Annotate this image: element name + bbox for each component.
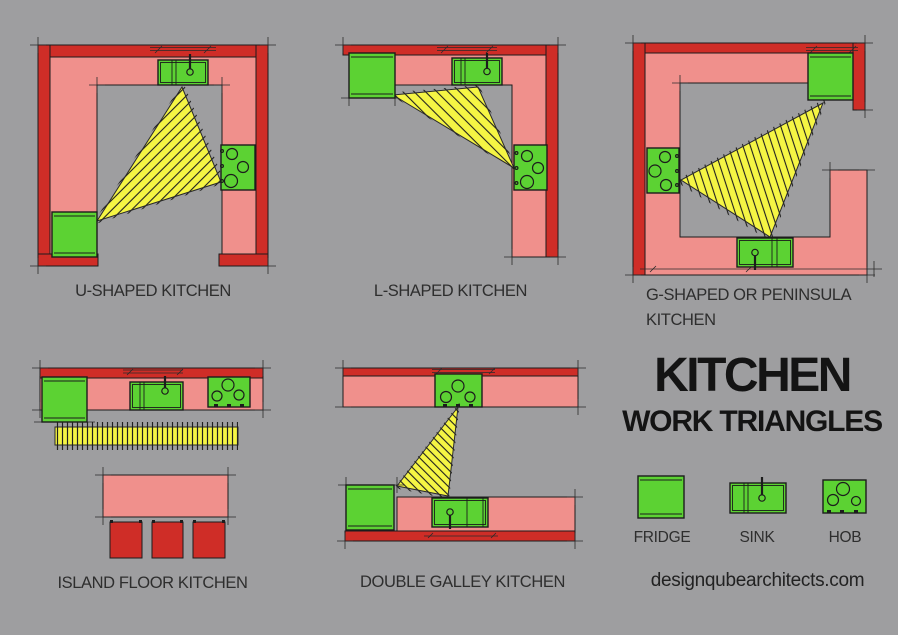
- fridge-icon: [42, 377, 87, 422]
- legend-sink-icon: [730, 477, 786, 513]
- label-g-shaped-kitchen: G-SHAPED OR PENINSULA KITCHEN: [646, 283, 881, 333]
- wall: [256, 45, 268, 266]
- hob-icon: [221, 145, 255, 190]
- label-u-shaped-kitchen: U-SHAPED KITCHEN: [38, 282, 268, 301]
- sink-icon: [737, 238, 793, 270]
- fridge-icon: [808, 53, 853, 100]
- legend-label-fridge: FRIDGE: [618, 529, 706, 547]
- fridge-icon: [52, 212, 97, 257]
- work-triangle-hatch: [681, 103, 823, 237]
- work-triangle-hatch: [397, 407, 458, 496]
- diagram-u-shaped-kitchen: [30, 37, 276, 274]
- fridge-icon: [346, 485, 394, 530]
- diagram-g-shaped-kitchen: [625, 35, 882, 283]
- wall: [38, 45, 268, 57]
- hob-icon: [647, 148, 679, 193]
- hob-icon: [514, 145, 547, 190]
- wall: [546, 45, 558, 257]
- sink-icon: [432, 498, 488, 529]
- hob-icon: [435, 374, 482, 407]
- label-double-galley-kitchen: DOUBLE GALLEY KITCHEN: [340, 573, 585, 592]
- title-line-1: KITCHEN: [612, 352, 892, 400]
- poster-title: KITCHEN WORK TRIANGLES: [612, 352, 892, 437]
- label-island-floor-kitchen: ISLAND FLOOR KITCHEN: [30, 574, 275, 593]
- sink-icon: [452, 53, 502, 85]
- legend-fridge-icon: [638, 476, 684, 518]
- wall: [633, 43, 645, 275]
- stools: [110, 520, 225, 558]
- wall: [853, 43, 865, 110]
- work-triangle-hatch: [97, 87, 221, 221]
- wall: [38, 45, 50, 266]
- legend-hob-icon: [823, 480, 866, 513]
- label-l-shaped-kitchen: L-SHAPED KITCHEN: [343, 282, 558, 301]
- title-line-2: WORK TRIANGLES: [612, 407, 892, 437]
- diagram-l-shaped-kitchen: [335, 37, 566, 265]
- wall: [219, 254, 268, 266]
- legend-label-sink: SINK: [713, 529, 801, 547]
- kitchen-work-triangles-poster: U-SHAPED KITCHEN L-SHAPED KITCHEN G-SHAP…: [0, 0, 898, 635]
- diagram-double-galley-kitchen: [335, 360, 586, 549]
- legend-label-hob: HOB: [801, 529, 889, 547]
- website-url: designqubearchitects.com: [625, 570, 890, 592]
- wall: [633, 43, 865, 53]
- diagram-island-floor-kitchen: [32, 360, 271, 558]
- work-zone-bar: [55, 422, 238, 450]
- work-triangle-hatch: [393, 87, 514, 168]
- hob-icon: [208, 377, 250, 407]
- fridge-icon: [349, 53, 395, 98]
- island-counter: [103, 475, 228, 517]
